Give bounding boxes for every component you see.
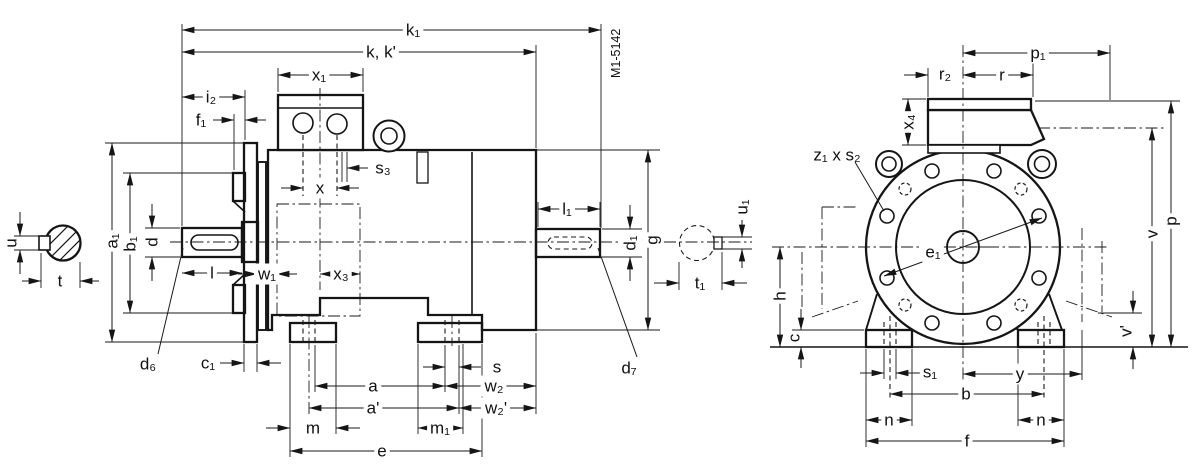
technical-drawing-page: k₁ k, k' x₁ i₂ f₁ s₃ x l w₁ x₃ t d₆ c₁ s… xyxy=(0,0,1200,476)
dim-label-x1: x₁ xyxy=(312,66,327,85)
dim-label-s: s xyxy=(493,358,502,377)
dim-label-p: p xyxy=(1162,216,1181,225)
dim-label-f1: f₁ xyxy=(196,111,207,130)
dim-label-x4: x₄ xyxy=(899,114,918,130)
dim-label-c: c xyxy=(785,333,804,342)
dim-label-d1: d₁ xyxy=(621,235,640,250)
lifting-eyebolt-right xyxy=(1028,150,1056,178)
dim-label-v-prime: v' xyxy=(1117,325,1136,337)
dim-label-p1: p₁ xyxy=(1030,44,1045,63)
dim-label-d6: d₆ xyxy=(140,355,156,374)
dim-label-x3: x₃ xyxy=(333,265,348,284)
dim-label-b: b xyxy=(961,385,970,404)
shaft-section-rear-end xyxy=(680,226,723,261)
dim-label-w2: w₂ xyxy=(484,377,504,396)
dim-label-w1: w₁ xyxy=(257,265,276,284)
dim-label-s3: s₃ xyxy=(375,159,390,178)
dim-label-d: d xyxy=(143,237,162,246)
dim-label-e1: e₁ xyxy=(925,243,940,262)
vent-plug xyxy=(417,152,428,183)
dim-label-x: x xyxy=(316,179,325,198)
foot-pad-right xyxy=(1018,330,1064,347)
front-view xyxy=(802,99,1112,347)
dim-label-d7: d₇ xyxy=(621,359,636,378)
dim-label-a-prime: a' xyxy=(367,399,380,418)
dim-label-e: e xyxy=(377,442,386,461)
dim-label-m: m xyxy=(306,419,320,438)
dim-label-h: h xyxy=(771,291,790,300)
foot-pad-left xyxy=(866,330,912,347)
doc-number: M1-5142 xyxy=(609,29,623,78)
shaft-section-drive-end xyxy=(36,214,98,280)
terminal-box-side xyxy=(278,95,363,150)
dim-label-l1: l₁ xyxy=(562,200,572,219)
foot-left xyxy=(290,323,336,342)
dim-label-c1: c₁ xyxy=(201,354,216,373)
motor-body-outline xyxy=(268,150,536,330)
dim-label-n-right: n xyxy=(1036,411,1045,430)
dim-label-m1: m₁ xyxy=(430,419,450,438)
foot-right xyxy=(418,323,482,342)
dim-label-k1: k₁ xyxy=(406,21,421,40)
terminal-box-front xyxy=(928,99,1044,153)
dim-label-w2-prime: w₂' xyxy=(484,399,507,418)
side-view xyxy=(36,95,722,342)
dim-label-a: a xyxy=(368,377,378,396)
dim-label-k: k, k' xyxy=(366,43,396,62)
dim-label-t1: t₁ xyxy=(695,274,706,293)
dim-label-f: f xyxy=(965,432,970,451)
dim-label-l: l xyxy=(210,264,214,283)
lifting-eyebolt-left xyxy=(876,151,902,177)
dim-label-v: v xyxy=(1143,229,1162,238)
keyway-slot xyxy=(191,235,238,250)
dim-label-y: y xyxy=(1016,365,1025,384)
dim-label-a1: a₁ xyxy=(103,233,122,248)
dim-label-b1: b₁ xyxy=(121,236,140,251)
lifting-eyebolt-side xyxy=(374,121,405,152)
dim-label-g: g xyxy=(643,235,662,244)
dim-label-n-left: n xyxy=(884,411,893,430)
dim-label-t: t xyxy=(58,272,63,291)
dim-label-r: r xyxy=(999,66,1005,85)
dim-label-u: u xyxy=(2,238,21,247)
rear-shaft xyxy=(536,229,600,257)
motor-dimension-drawing: k₁ k, k' x₁ i₂ f₁ s₃ x l w₁ x₃ t d₆ c₁ s… xyxy=(0,0,1200,476)
dim-label-s1: s₁ xyxy=(923,363,938,382)
dim-label-r2: r₂ xyxy=(939,65,951,84)
dim-label-u1: u₁ xyxy=(733,199,752,214)
dim-label-z1s2: z₁ x s₂ xyxy=(813,146,860,165)
dim-label-i2: i₂ xyxy=(206,88,216,107)
